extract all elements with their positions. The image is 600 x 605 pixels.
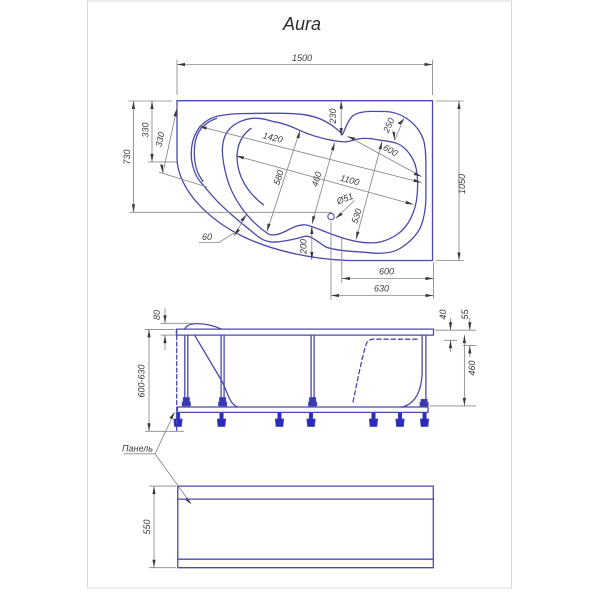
svg-text:1050: 1050 [457,174,467,194]
svg-text:40: 40 [438,309,448,319]
svg-text:Aura: Aura [282,14,321,34]
svg-text:600: 600 [379,267,394,277]
svg-text:730: 730 [122,149,132,164]
svg-text:60: 60 [202,232,212,242]
svg-text:630: 630 [374,284,389,294]
svg-text:200: 200 [299,239,309,255]
svg-text:230: 230 [328,108,338,124]
svg-text:80: 80 [152,310,162,320]
svg-text:330: 330 [141,122,151,137]
svg-text:600-630: 600-630 [137,364,147,397]
svg-text:Панель: Панель [122,444,153,454]
svg-text:55: 55 [460,309,470,320]
svg-text:550: 550 [142,519,152,534]
svg-text:460: 460 [467,360,477,375]
svg-text:1500: 1500 [292,53,312,63]
